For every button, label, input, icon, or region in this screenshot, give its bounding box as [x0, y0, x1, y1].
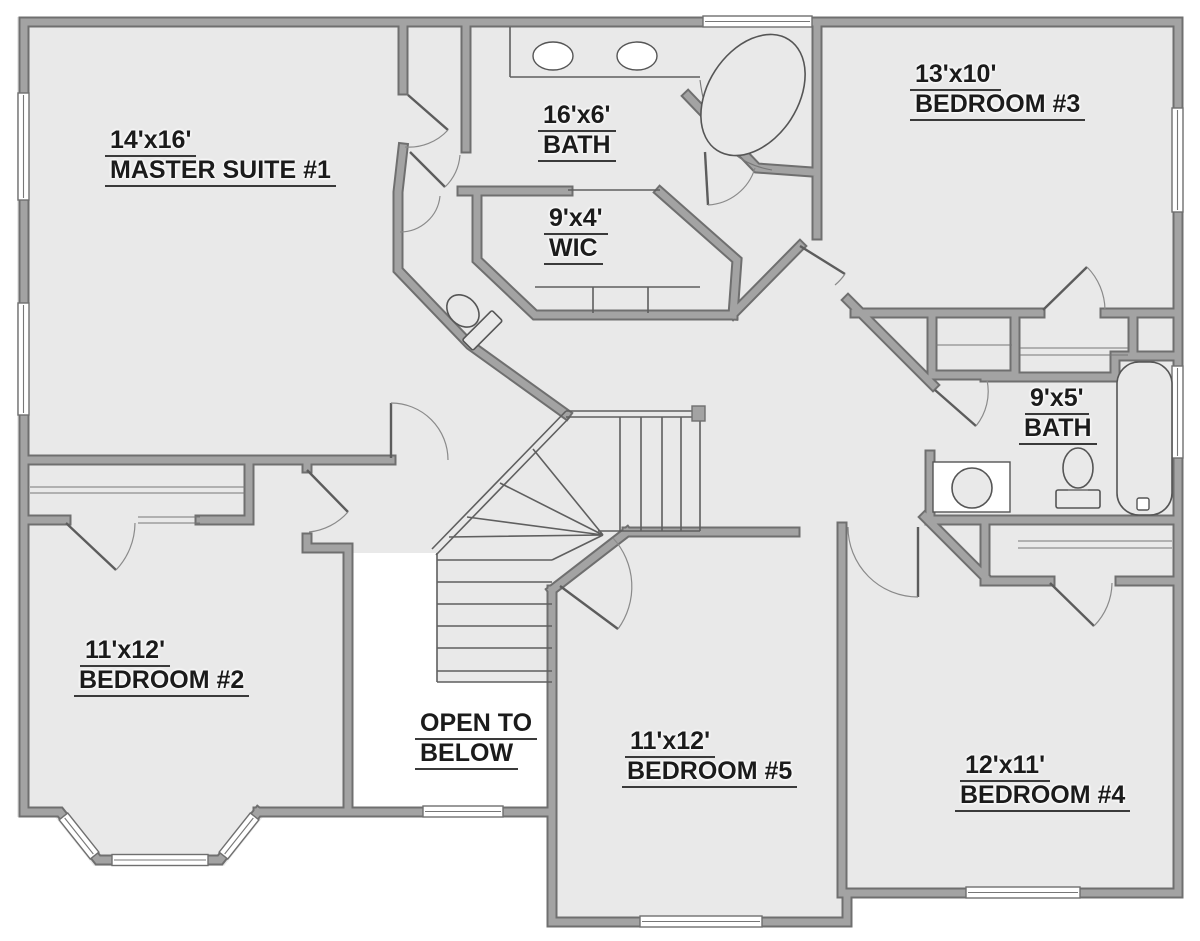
master-suite-name-label: MASTER SUITE #1	[105, 157, 336, 187]
bay-window-center-pane	[112, 855, 208, 866]
window-bedroom5	[640, 916, 762, 927]
wic-size-label: 9'x4'	[544, 205, 608, 235]
bath2-name-label: BATH	[1019, 415, 1097, 445]
open-to-below-label-line1: OPEN TO	[415, 710, 537, 740]
bedroom2-size-label: 11'x12'	[80, 637, 170, 667]
bedroom3-name-label: BEDROOM #3	[910, 91, 1085, 121]
vanity-sink-left-icon	[533, 42, 573, 70]
railing-newel-post	[692, 406, 705, 421]
master-bath-size-label: 16'x6'	[538, 102, 616, 132]
master-suite-size-label: 14'x16'	[105, 127, 196, 157]
floor-plan: 14'x16' MASTER SUITE #1 16'x6' BATH 13'x…	[0, 0, 1200, 941]
window-right-bedroom3	[1172, 108, 1183, 212]
bedroom5-size-label: 11'x12'	[625, 728, 715, 758]
bedroom4-size-label: 12'x11'	[960, 752, 1050, 782]
window-right-bath	[1172, 366, 1183, 458]
master-bath-name-label: BATH	[538, 132, 616, 162]
open-to-below-label-line2: BELOW	[415, 740, 518, 770]
utility-fixture-icon	[952, 468, 992, 508]
wic-name-label: WIC	[544, 235, 603, 265]
bedroom2-name-label: BEDROOM #2	[74, 667, 249, 697]
window-left-upper	[18, 93, 29, 200]
window-left-lower	[18, 303, 29, 415]
bath2-size-label: 9'x5'	[1025, 385, 1089, 415]
bathtub-icon	[1117, 362, 1172, 515]
window-open-below	[423, 806, 503, 817]
window-bedroom4	[966, 887, 1080, 898]
bedroom5-name-label: BEDROOM #5	[622, 758, 797, 788]
bedroom3-size-label: 13'x10'	[910, 61, 1001, 91]
bedroom4-name-label: BEDROOM #4	[955, 782, 1130, 812]
window-top-bath	[703, 16, 812, 27]
vanity-sink-right-icon	[617, 42, 657, 70]
